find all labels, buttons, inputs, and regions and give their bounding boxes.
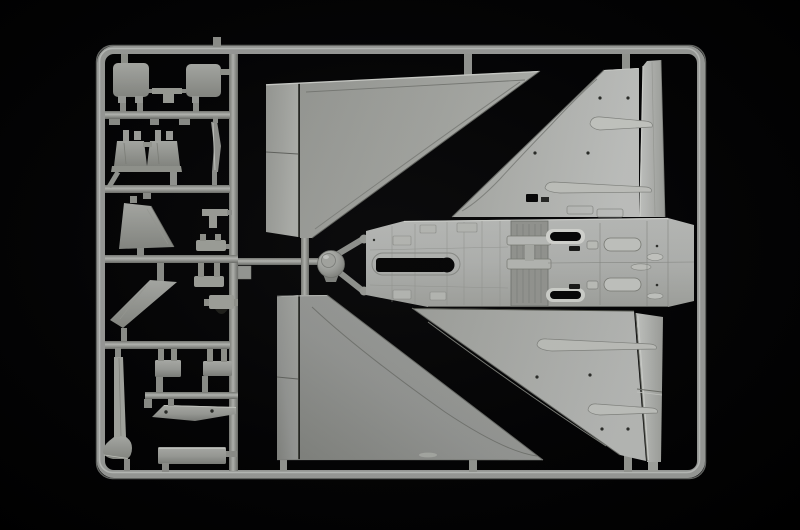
sprue-photo bbox=[0, 0, 800, 530]
vignette-overlay bbox=[0, 0, 800, 530]
photo-stage bbox=[0, 0, 800, 530]
